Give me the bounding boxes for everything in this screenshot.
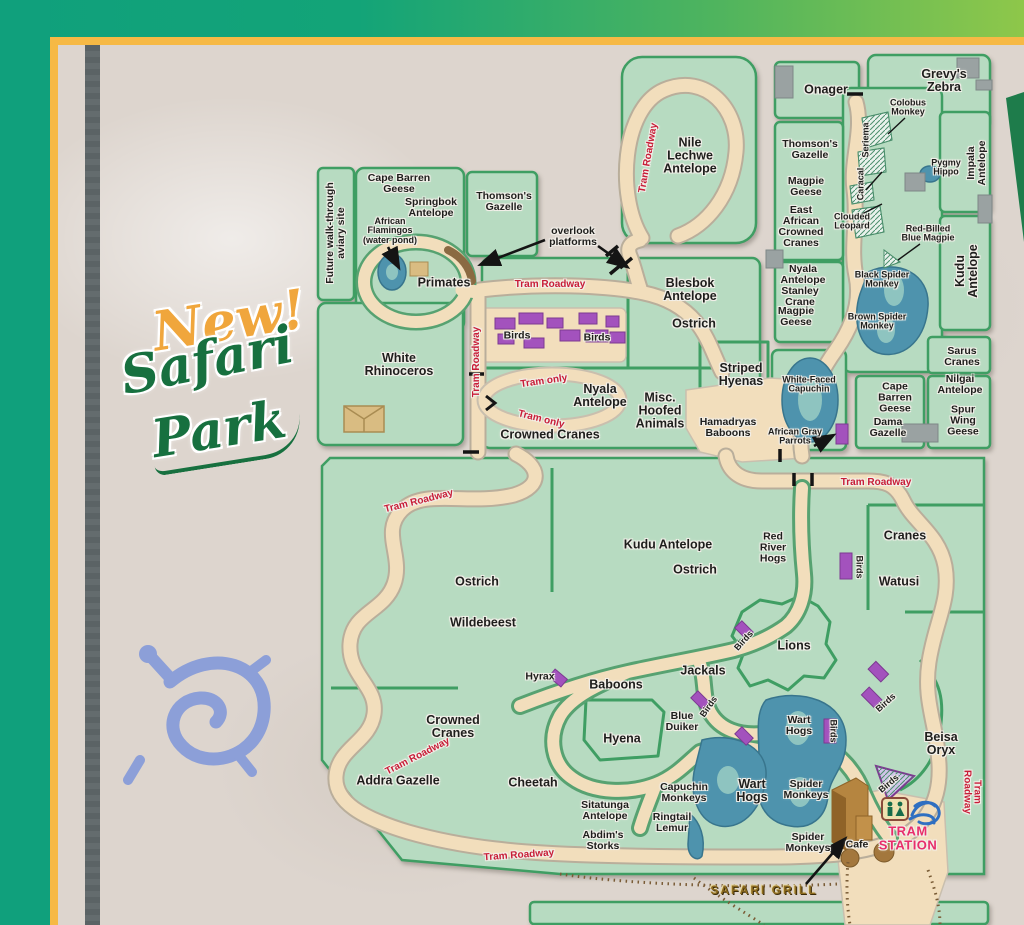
map-label: Cheetah [508, 777, 557, 790]
map-label: Onager [804, 84, 848, 97]
map-label: Kudu Antelope [954, 244, 980, 297]
map-label: Brown Spider Monkey [848, 313, 907, 332]
map-label: African Flamingos (water pond) [363, 217, 417, 245]
map-label: Dama Gazelle [870, 417, 907, 439]
map-label: Grevy's Zebra [921, 68, 966, 94]
map-label: Birds [854, 555, 863, 578]
restroom-icon [882, 798, 908, 820]
map-label: TRAM STATION [879, 824, 938, 851]
map-label: Black Spider Monkey [855, 271, 910, 290]
map-label: Spider Monkeys [786, 832, 831, 854]
map-label: Tram Roadway [961, 766, 982, 819]
map-label: Clouded Leopard [834, 213, 870, 232]
map-label: Nyala Antelope [573, 383, 626, 409]
map-label: Crowned Cranes [500, 429, 599, 442]
map-label: Red-Billed Blue Magpie [901, 225, 954, 244]
map-label: Jackals [680, 665, 725, 678]
map-label: White-Faced Capuchin [782, 376, 836, 395]
map-label: Cape Barren Geese [368, 173, 430, 195]
safari-park-map-page: New! Safari Park Future walk-through avi… [0, 0, 1024, 925]
map-label: Beisa Oryx [924, 731, 957, 757]
map-label: Ostrich [673, 564, 717, 577]
map-label: Baboons [589, 679, 642, 692]
map-label: Pygmy Hippo [931, 159, 961, 178]
map-label: Caracal [856, 168, 865, 201]
map-label: Birds [504, 331, 531, 342]
map-label: Wart Hogs [786, 715, 812, 737]
map-label: Cape Barren Geese [878, 382, 912, 415]
map-label: East African Crowned Cranes [779, 205, 824, 249]
map-label: Capuchin Monkeys [660, 782, 708, 804]
map-label: Crowned Cranes [426, 714, 479, 740]
map-label: Blue Duiker [666, 711, 699, 733]
map-label: Sarus Cranes [944, 346, 980, 368]
map-label: Hyrax [525, 672, 554, 683]
map-label: Lions [777, 640, 810, 653]
map-label: White Rhinoceros [365, 352, 434, 378]
map-label: Ostrich [672, 318, 716, 331]
map-label: Hyena [603, 733, 641, 746]
map-label: Magpie Geese [788, 176, 824, 198]
map-label: Nile Lechwe Antelope [663, 137, 716, 176]
map-label: Red River Hogs [760, 532, 786, 565]
map-label: Thomson's Gazelle [782, 139, 838, 161]
map-label: Spider Monkeys [784, 779, 829, 801]
map-label: Magpie Geese [778, 306, 814, 328]
map-label: Cranes [884, 530, 926, 543]
map-label: Wart Hogs [736, 778, 767, 804]
map-label: Spur Wing Geese [947, 405, 979, 438]
map-label: overlook platforms [549, 226, 597, 248]
map-label: Tram Roadway [841, 478, 912, 488]
map-label: Striped Hyenas [719, 362, 763, 388]
map-label: Sitatunga Antelope [581, 800, 629, 822]
map-label: Hamadryas Baboons [700, 417, 757, 439]
map-label: Abdim's Storks [582, 830, 623, 852]
map-label: Addra Gazelle [356, 775, 439, 788]
map-label: Kudu Antelope [624, 539, 712, 552]
map-label: Springbok Antelope [405, 197, 457, 219]
map-label: Misc. Hoofed Animals [636, 392, 685, 431]
map-label: Thomson's Gazelle [476, 191, 532, 213]
map-label: Birds [584, 333, 611, 344]
map-label: Ostrich [455, 576, 499, 589]
map-label: Cafe [846, 840, 869, 851]
map-label: Tram Roadway [472, 327, 482, 398]
map-label: Birds [828, 719, 837, 742]
map-label: Colobus Monkey [890, 99, 926, 118]
map-label: Watusi [879, 576, 920, 589]
map-label: SAFARI GRILL [710, 884, 817, 896]
petroglyph-logo [128, 645, 266, 780]
map-label: African Gray Parrots [768, 428, 822, 447]
map-label: Primates [418, 277, 471, 290]
map-label: Seriema [861, 122, 870, 157]
map-label: Nyala Antelope [781, 264, 826, 286]
map-label: Wildebeest [450, 617, 516, 630]
map-label: Impala Antelope [966, 141, 988, 186]
edge-letter-fragment [1006, 92, 1024, 242]
map-label: Tram Roadway [515, 280, 586, 290]
map-label: Future walk-through aviary site [325, 182, 347, 284]
map-label: Ringtail Lemur [653, 812, 692, 834]
map-label: Blesbok Antelope [663, 277, 716, 303]
map-label: Nilgai Antelope [938, 374, 983, 396]
